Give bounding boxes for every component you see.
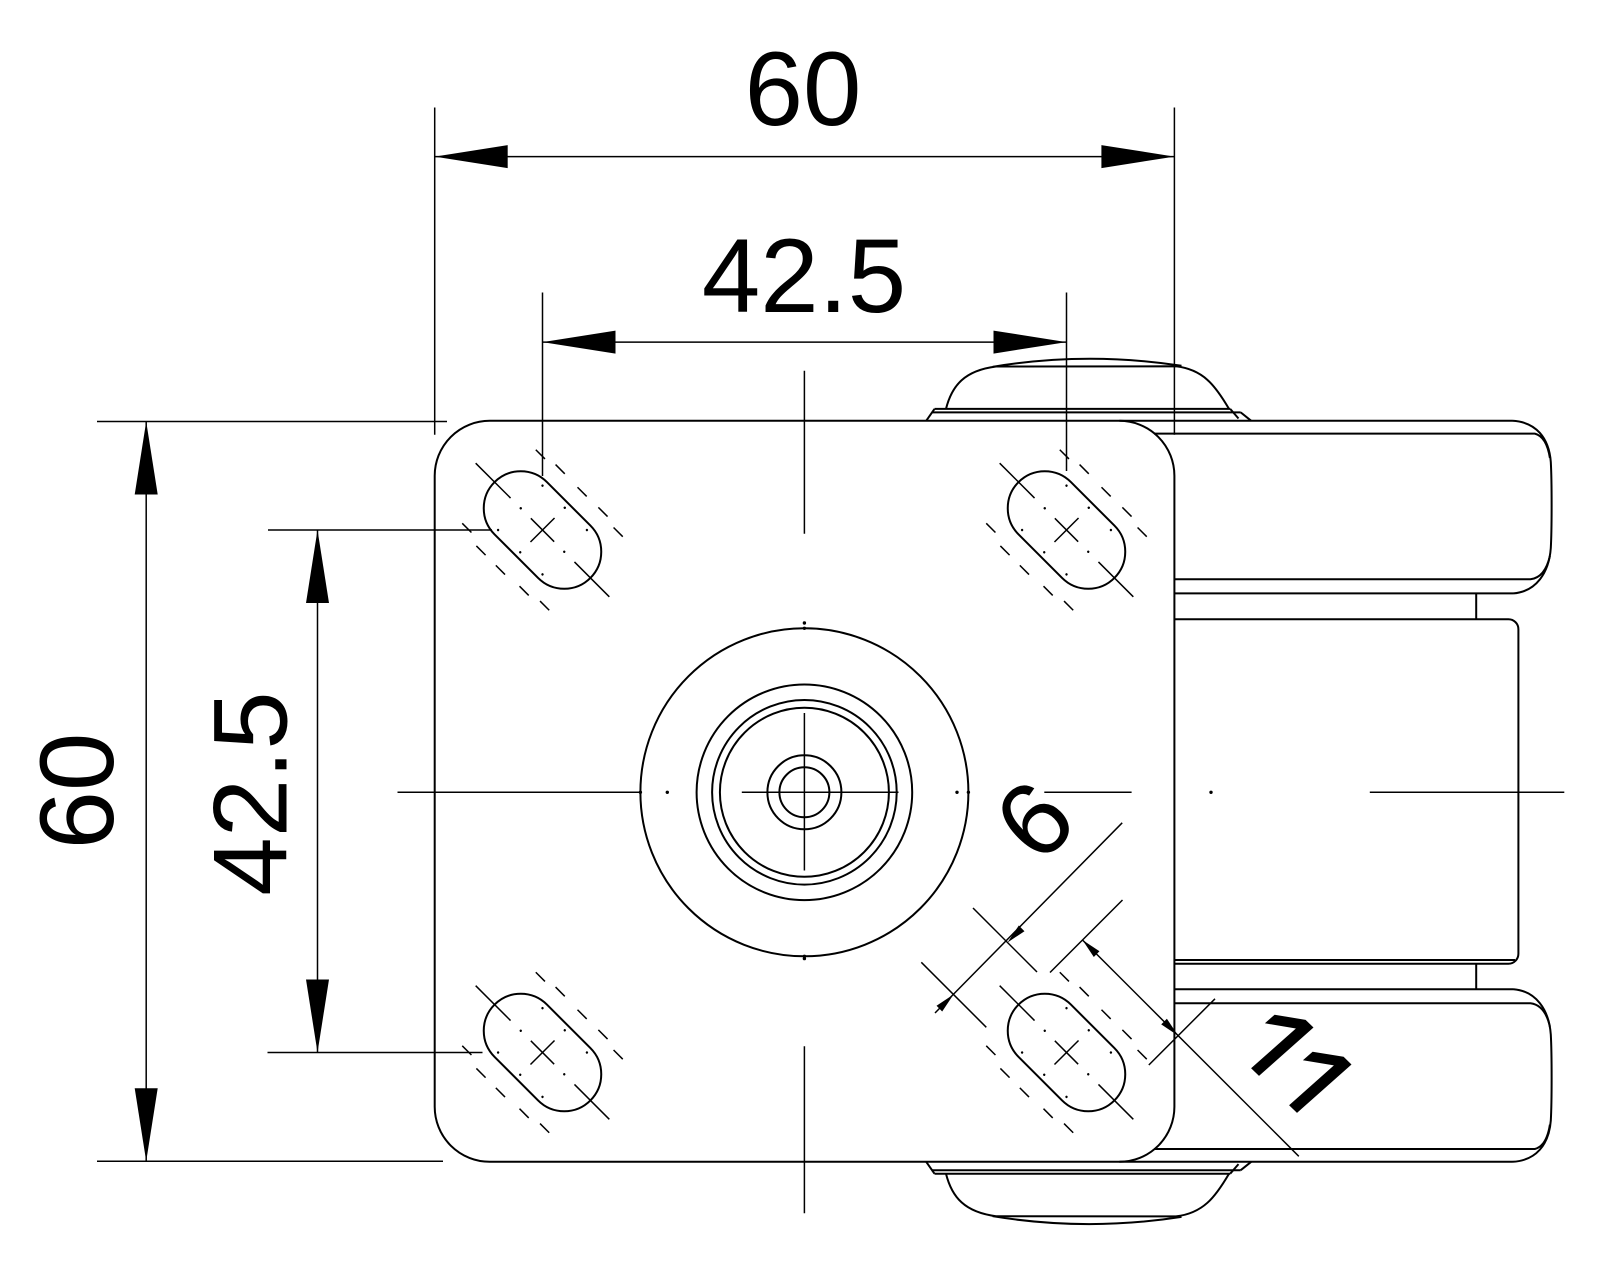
- svg-text:42.5: 42.5: [702, 218, 906, 335]
- svg-text:42.5: 42.5: [193, 691, 310, 895]
- svg-text:60: 60: [19, 733, 136, 850]
- svg-text:60: 60: [745, 31, 862, 148]
